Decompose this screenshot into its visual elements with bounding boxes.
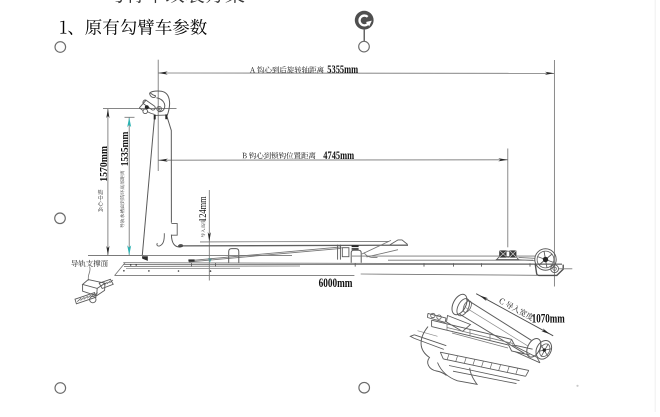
svg-text:1570mm: 1570mm xyxy=(99,146,110,182)
svg-text:6000mm: 6000mm xyxy=(319,277,353,291)
svg-text:124mm: 124mm xyxy=(197,196,208,222)
svg-text:1535mm: 1535mm xyxy=(120,131,131,166)
svg-text:4745mm: 4745mm xyxy=(323,150,354,163)
svg-text:1070mm: 1070mm xyxy=(532,312,565,326)
svg-text:5355mm: 5355mm xyxy=(327,64,358,77)
